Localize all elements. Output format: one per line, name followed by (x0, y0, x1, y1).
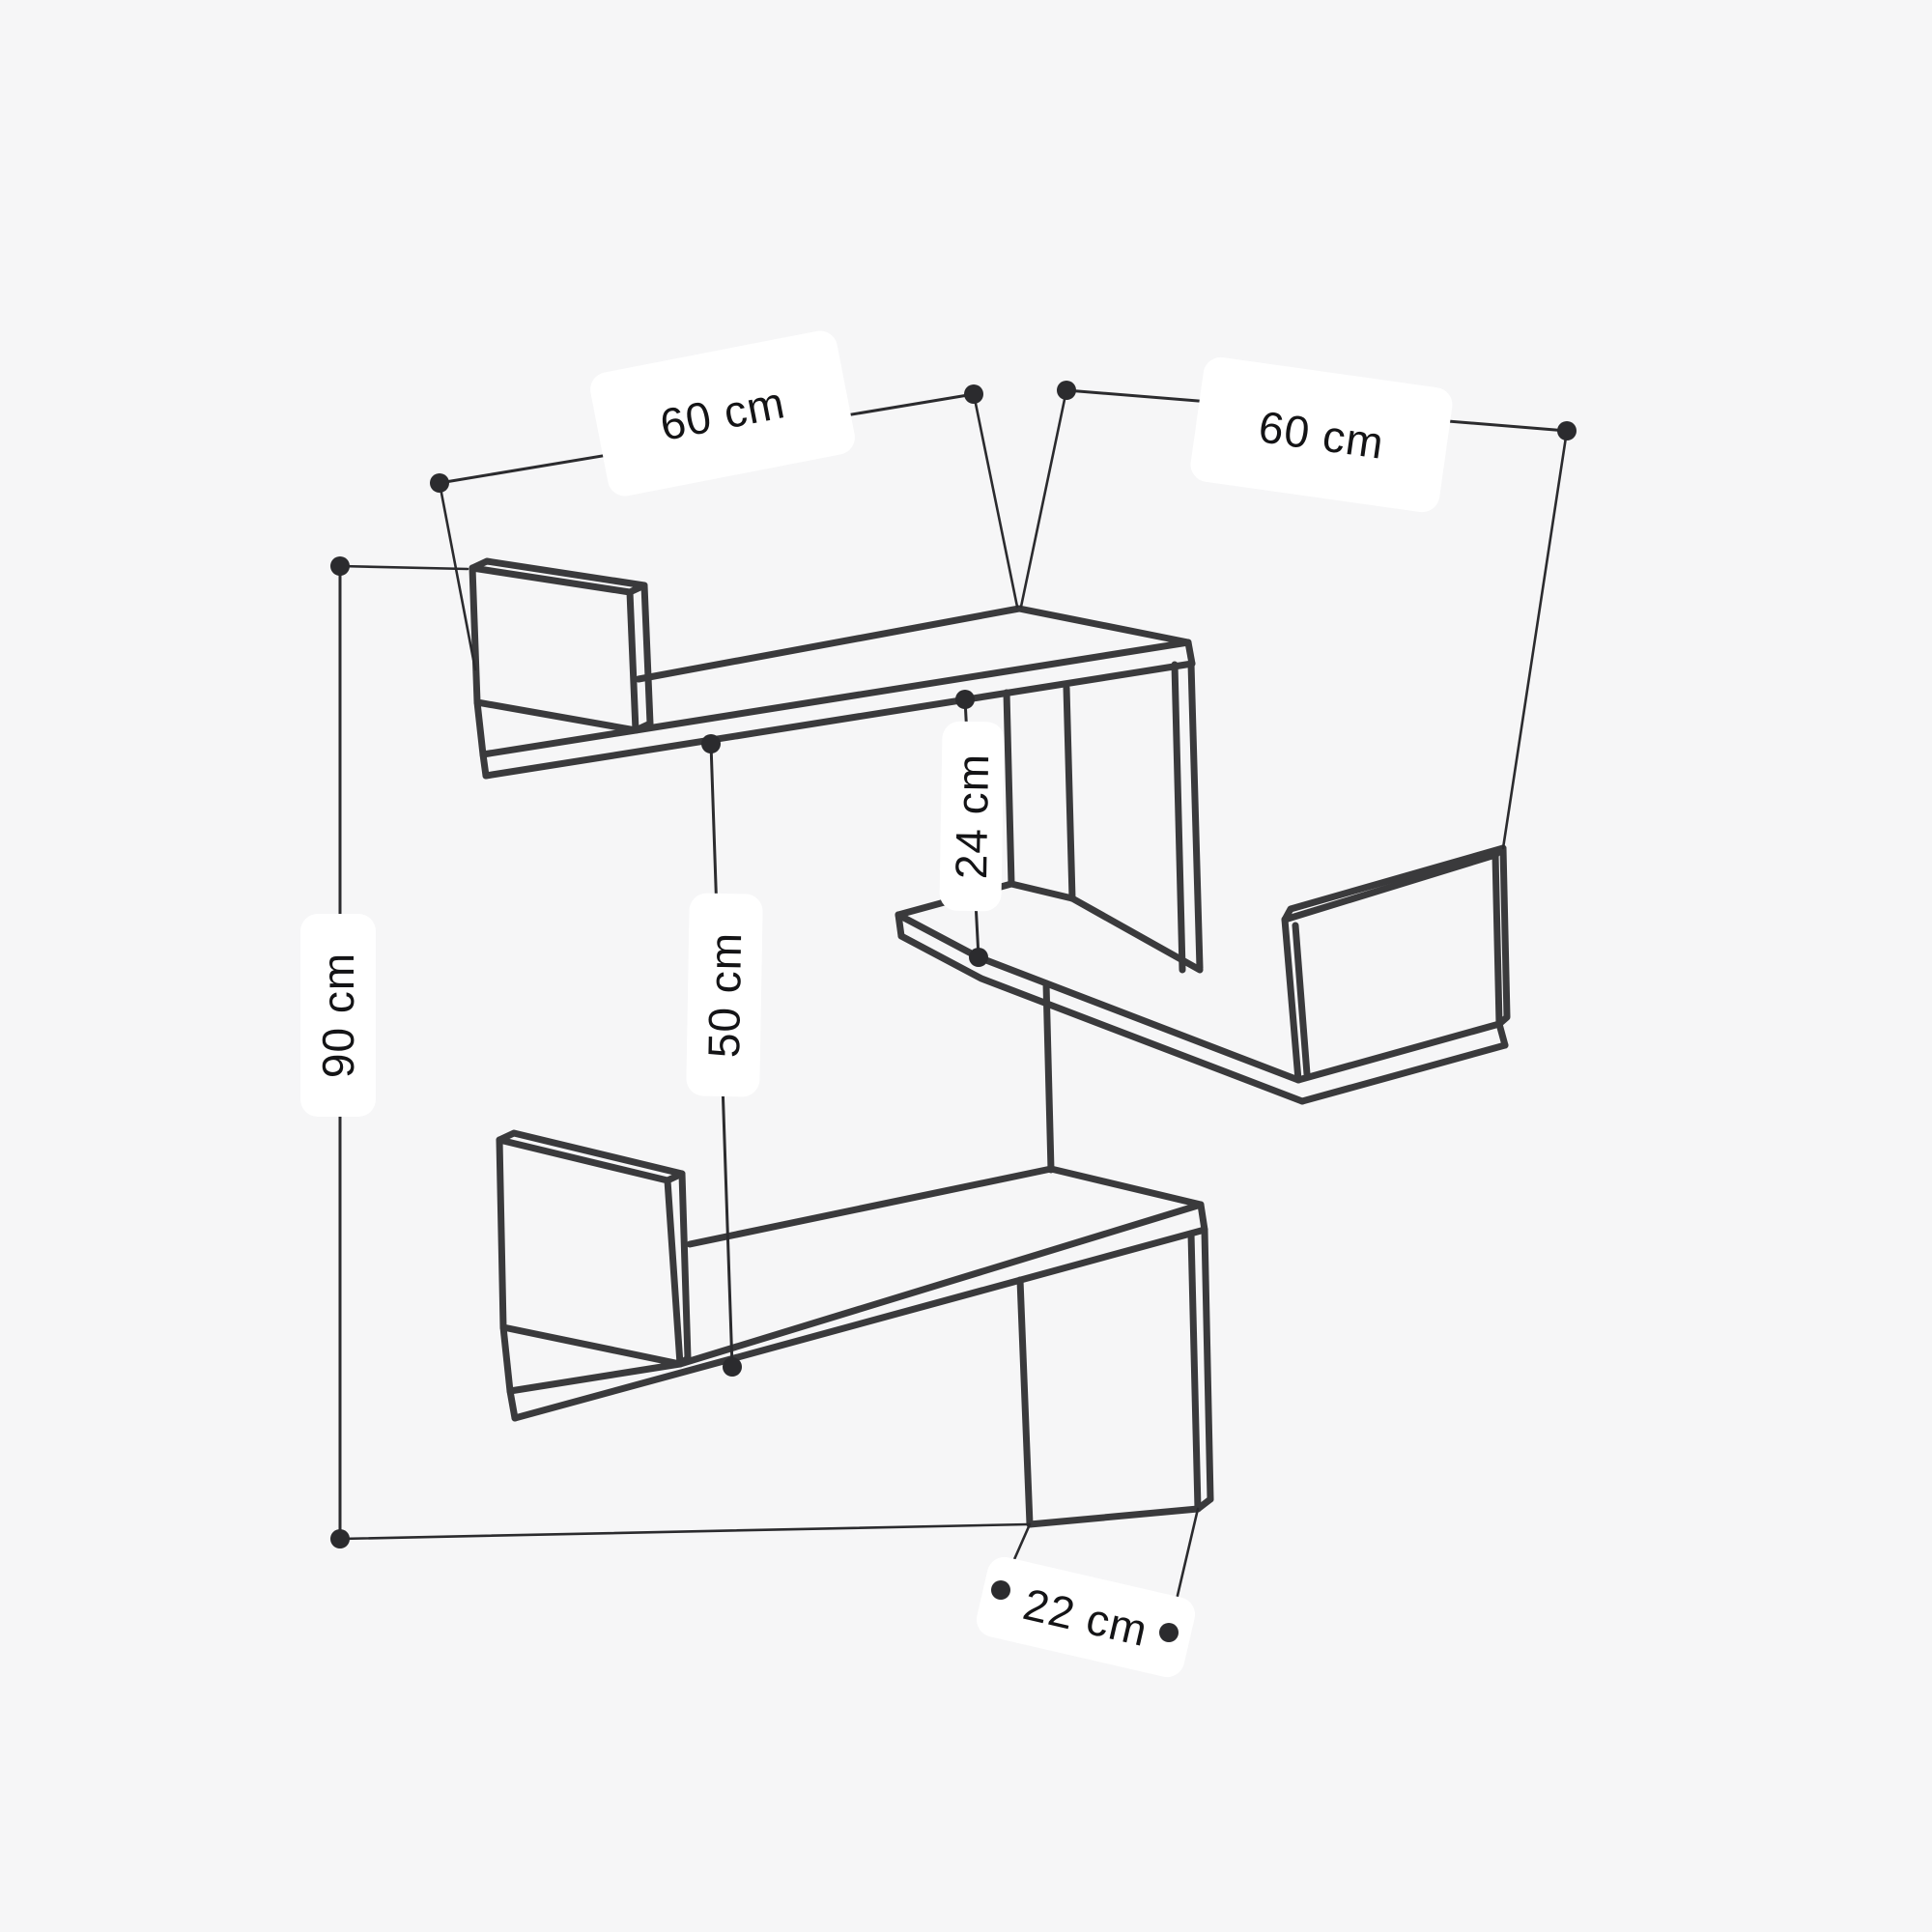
shelf-to-shelf-height-endpoint-dot-0 (701, 734, 721, 753)
top-right-width-endpoint-dot-1 (1557, 421, 1577, 440)
top-left-width-endpoint-dot-1 (964, 384, 983, 404)
tier-gap-height-endpoint-dot-1 (969, 948, 988, 967)
bottom-panel-depth-endpoint-dot-0 (991, 1580, 1010, 1600)
bottom-panel-depth-endpoint-dot-1 (1159, 1623, 1179, 1642)
dim-label-shelf-gap: 50 cm (698, 931, 751, 1058)
dim-label-total-height: 90 cm (313, 952, 363, 1078)
top-right-width-endpoint-dot-0 (1057, 381, 1076, 400)
tier3-shelf-right-cap (1201, 1205, 1205, 1230)
top-left-width-endpoint-dot-0 (430, 473, 449, 493)
shelf-to-shelf-height-endpoint-dot-1 (723, 1357, 742, 1377)
divider1-back-left-edge (1007, 693, 1011, 884)
divider2-front-edge (1046, 983, 1051, 1170)
tier3-shelf-left-cap (510, 1391, 515, 1418)
shelf-dimension-diagram: 60 cm 60 cm 90 cm 50 cm 24 cm 22 cm (0, 0, 1932, 1932)
tier-gap-height-endpoint-dot-0 (955, 690, 975, 709)
diagram-page: 60 cm 60 cm 90 cm 50 cm 24 cm 22 cm (0, 0, 1932, 1932)
dim-label-tier-gap: 24 cm (946, 753, 998, 879)
total-height-endpoint-dot-0 (330, 556, 350, 576)
diagram-background (0, 0, 1932, 1932)
total-height-endpoint-dot-1 (330, 1529, 350, 1548)
